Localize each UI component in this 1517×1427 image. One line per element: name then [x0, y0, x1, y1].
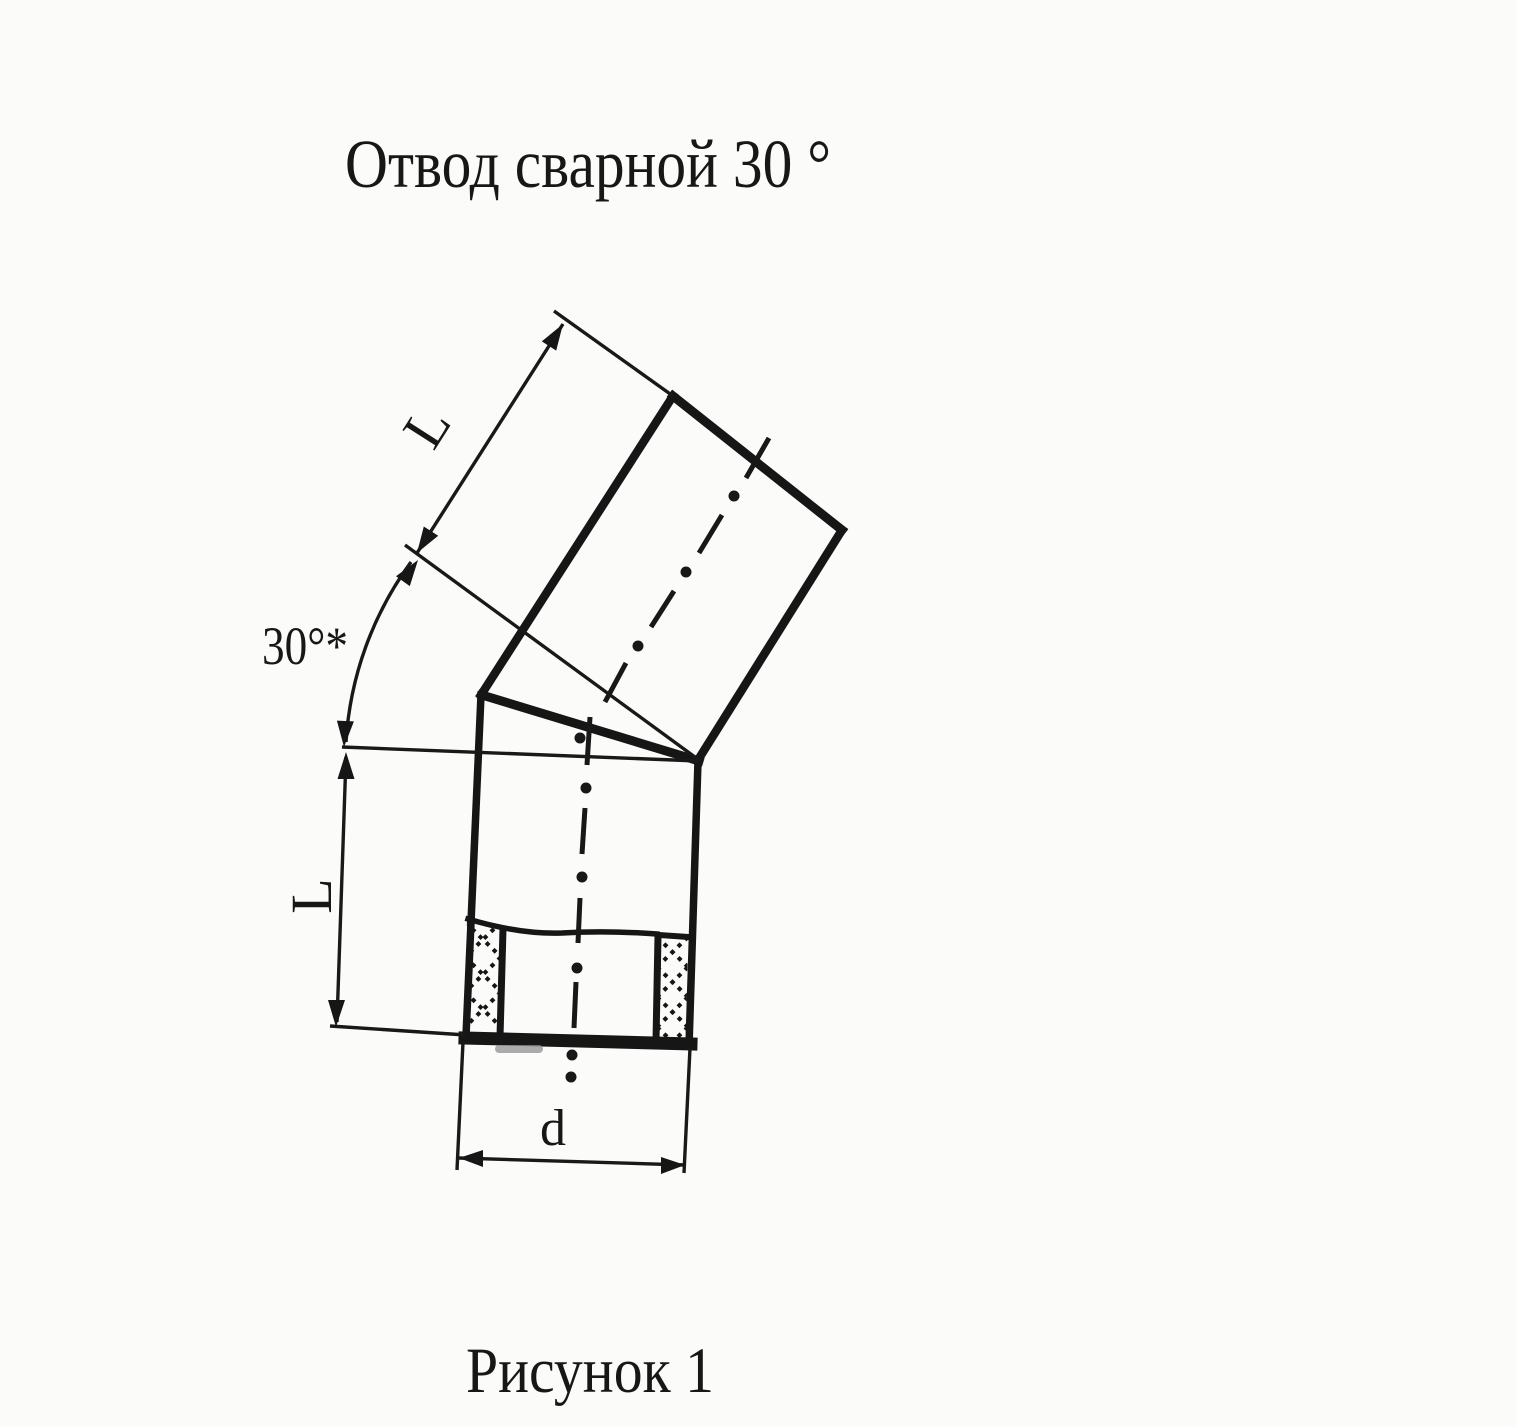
svg-text:30°*: 30°* — [262, 616, 348, 676]
svg-text:Отвод сварной 30 °: Отвод сварной 30 ° — [345, 126, 831, 202]
svg-text:L: L — [279, 878, 344, 913]
svg-text:Рисунок 1: Рисунок 1 — [466, 1335, 714, 1407]
svg-text:d: d — [540, 1100, 566, 1157]
